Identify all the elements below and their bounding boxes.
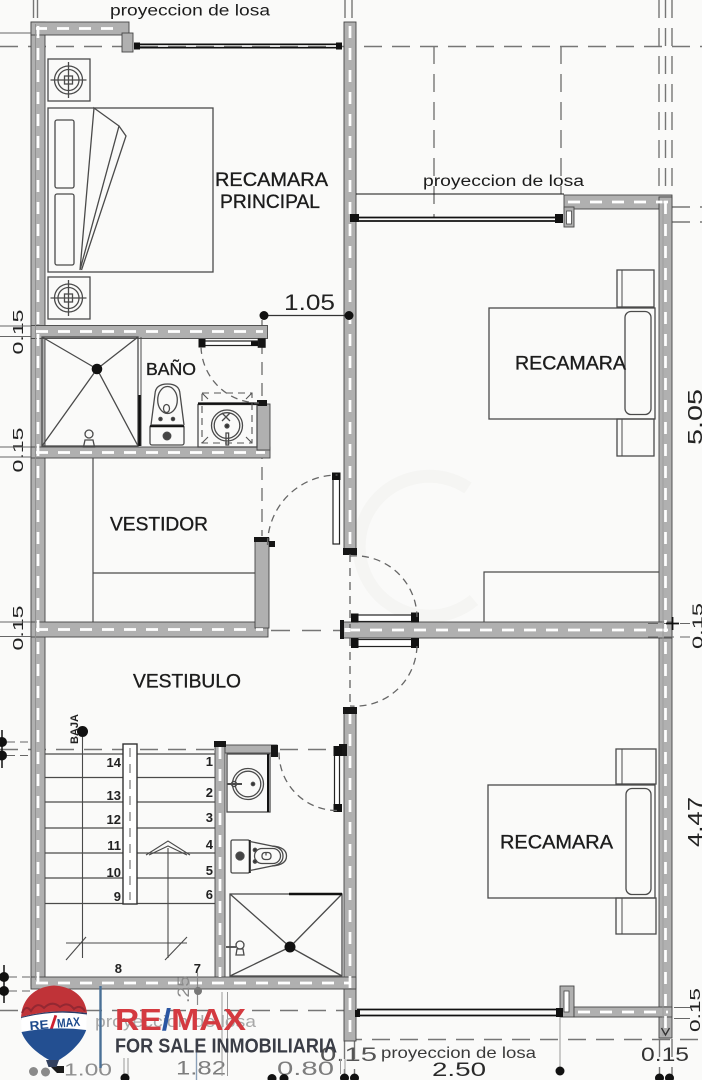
svg-text:0.15: 0.15 — [687, 988, 702, 1032]
svg-text:RE/MAX: RE/MAX — [115, 1002, 246, 1037]
svg-text:RECAMARA: RECAMARA — [215, 170, 328, 191]
svg-text:0.15: 0.15 — [11, 310, 27, 355]
svg-text:13: 13 — [107, 788, 121, 803]
svg-text:MAX: MAX — [56, 1015, 81, 1031]
svg-text:2: 2 — [206, 785, 213, 800]
svg-text:5: 5 — [206, 863, 213, 878]
svg-text:VESTIBULO: VESTIBULO — [133, 672, 241, 693]
svg-text:BAJA: BAJA — [69, 714, 81, 744]
svg-text:0.15: 0.15 — [641, 1045, 689, 1066]
svg-text:PRINCIPAL: PRINCIPAL — [220, 192, 320, 213]
svg-text:proyeccion de losa: proyeccion de losa — [423, 173, 584, 190]
svg-text:.25: .25 — [174, 976, 193, 1003]
svg-text:9: 9 — [114, 889, 121, 904]
svg-text:1.05: 1.05 — [284, 290, 335, 315]
svg-text:11: 11 — [107, 838, 121, 853]
svg-text:5.05: 5.05 — [685, 389, 702, 445]
svg-text:12: 12 — [107, 812, 121, 827]
svg-text:4: 4 — [206, 837, 214, 852]
svg-text:1.82: 1.82 — [176, 1059, 226, 1080]
svg-text:1: 1 — [206, 754, 213, 769]
svg-text:1.00: 1.00 — [64, 1060, 112, 1080]
svg-text:0.15: 0.15 — [11, 606, 27, 651]
svg-text:0.15: 0.15 — [690, 603, 702, 649]
svg-text:RECAMARA: RECAMARA — [515, 354, 626, 375]
svg-text:4.47: 4.47 — [685, 797, 702, 847]
svg-text:FOR SALE INMOBILIARIA: FOR SALE INMOBILIARIA — [115, 1036, 337, 1058]
svg-text:proyeccion de losa: proyeccion de losa — [381, 1045, 536, 1062]
svg-text:0.15: 0.15 — [11, 428, 27, 473]
svg-text:8: 8 — [115, 961, 122, 976]
svg-text:RECAMARA: RECAMARA — [500, 833, 613, 854]
svg-text:14: 14 — [107, 755, 122, 770]
svg-text:VESTIDOR: VESTIDOR — [110, 515, 208, 536]
svg-text:10: 10 — [107, 865, 121, 880]
svg-text:6: 6 — [206, 887, 213, 902]
svg-text:BAÑO: BAÑO — [146, 358, 196, 379]
svg-text:2.50: 2.50 — [432, 1059, 486, 1080]
svg-text:3: 3 — [206, 810, 213, 825]
svg-text:proyeccion de losa: proyeccion de losa — [110, 3, 270, 20]
